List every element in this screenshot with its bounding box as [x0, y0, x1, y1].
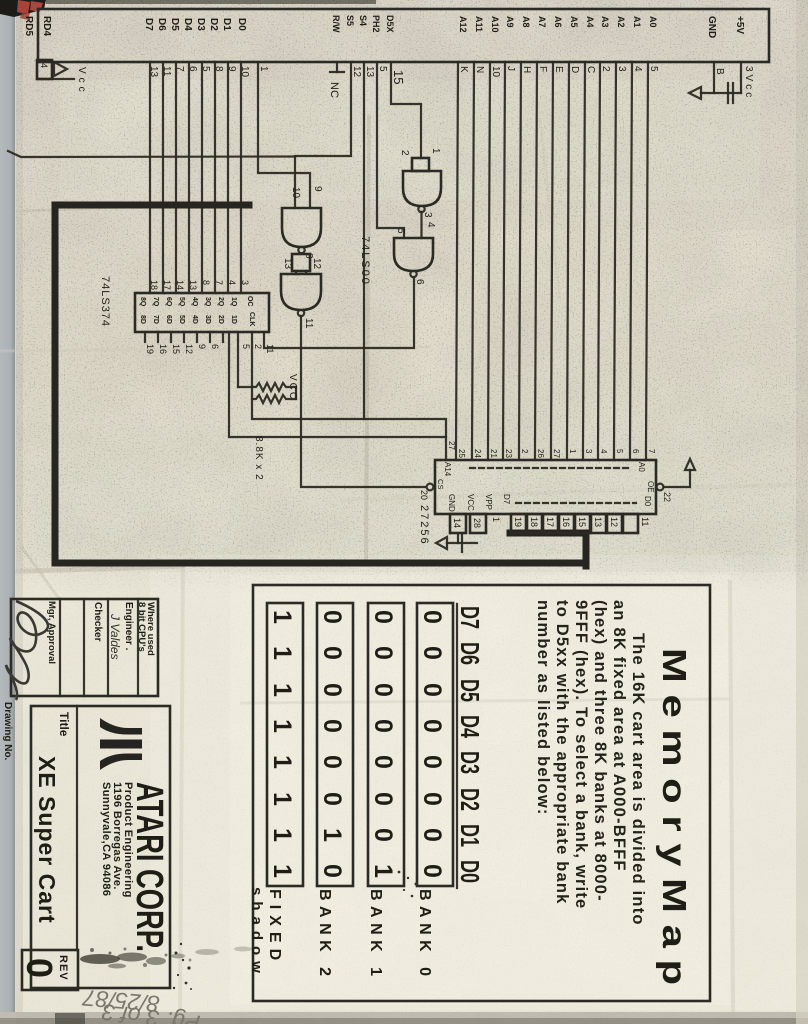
svg-text:A6: A6: [553, 16, 563, 28]
svg-text:22: 22: [662, 492, 672, 502]
svg-text:D5: D5: [169, 18, 180, 31]
svg-text:to D5xx with the appropriate b: to D5xx with the appropriate bank: [553, 600, 571, 905]
svg-text:4D: 4D: [191, 315, 198, 324]
svg-text:0: 0: [318, 646, 346, 660]
svg-text:0: 0: [418, 828, 446, 842]
svg-text:5: 5: [377, 66, 388, 72]
svg-text:15: 15: [577, 517, 587, 527]
svg-text:A8: A8: [521, 16, 531, 28]
svg-text:27: 27: [447, 441, 456, 450]
svg-text:D0: D0: [236, 18, 247, 31]
svg-text:23: 23: [504, 449, 513, 458]
svg-text:5: 5: [395, 228, 406, 234]
svg-text:8 bit CPU's: 8 bit CPU's: [136, 602, 147, 652]
svg-text:24: 24: [473, 449, 482, 458]
svg-text:D5X: D5X: [385, 15, 395, 33]
svg-text:D4: D4: [455, 715, 485, 738]
svg-text:1: 1: [268, 610, 296, 624]
svg-text:GND: GND: [706, 16, 717, 38]
svg-text:26: 26: [536, 449, 545, 458]
svg-text:8: 8: [201, 280, 211, 285]
svg-text:1: 1: [258, 66, 269, 72]
svg-text:4: 4: [632, 66, 643, 72]
svg-text:1: 1: [268, 719, 296, 733]
svg-text:9FFF (hex). To select a bank,: 9FFF (hex). To select a bank, write: [572, 600, 590, 909]
svg-text:Vcc: Vcc: [76, 67, 87, 96]
svg-text:7: 7: [174, 66, 185, 72]
svg-text:VCC: VCC: [287, 374, 298, 401]
svg-text:6D: 6D: [165, 315, 172, 324]
svg-text:NC: NC: [328, 82, 340, 98]
svg-text:2D: 2D: [217, 315, 224, 324]
svg-text:0: 0: [369, 610, 397, 624]
svg-text:15: 15: [171, 344, 181, 354]
svg-text:Drawing No.: Drawing No.: [2, 702, 13, 761]
svg-text:4: 4: [227, 280, 237, 285]
svg-text:2: 2: [600, 66, 611, 72]
svg-text:27256: 27256: [418, 505, 430, 546]
svg-text:VCC: VCC: [466, 494, 475, 511]
svg-text:3D: 3D: [204, 315, 211, 324]
svg-text:D0: D0: [455, 860, 485, 883]
svg-text:1: 1: [268, 683, 296, 697]
svg-text:0: 0: [318, 719, 346, 733]
svg-text:14: 14: [175, 280, 185, 290]
svg-text:number as listed below:: number as listed below:: [534, 600, 552, 816]
svg-text:7D: 7D: [152, 315, 159, 324]
svg-text:1: 1: [491, 517, 501, 522]
svg-text:5: 5: [648, 66, 659, 72]
svg-text:6: 6: [187, 66, 198, 72]
svg-text:6Q: 6Q: [165, 297, 172, 307]
svg-text:E: E: [553, 66, 564, 73]
svg-text:8D: 8D: [139, 315, 146, 324]
svg-text:0: 0: [318, 792, 346, 806]
svg-text:XE Super Cart: XE Super Cart: [34, 756, 60, 924]
svg-text:1: 1: [268, 755, 296, 769]
svg-text:13: 13: [188, 280, 198, 290]
svg-text:H: H: [521, 66, 532, 73]
svg-text:2: 2: [253, 344, 263, 349]
svg-text:1: 1: [318, 828, 346, 842]
svg-text:14: 14: [452, 518, 462, 528]
svg-text:7: 7: [214, 280, 224, 285]
svg-text:9: 9: [312, 186, 323, 192]
svg-text:3Q: 3Q: [204, 297, 211, 307]
svg-text:3: 3: [422, 212, 433, 218]
svg-text:6: 6: [414, 279, 425, 285]
svg-text:17: 17: [162, 280, 172, 290]
svg-text:D: D: [569, 66, 580, 73]
svg-text:12: 12: [184, 344, 194, 354]
svg-text:A7: A7: [537, 16, 547, 28]
svg-text:RD5: RD5: [23, 16, 34, 36]
svg-text:3: 3: [616, 66, 627, 72]
svg-text:A1: A1: [632, 16, 642, 28]
svg-text:19: 19: [513, 517, 523, 527]
svg-text:0: 0: [369, 719, 397, 733]
svg-text:D6: D6: [455, 642, 485, 665]
svg-text:D1: D1: [455, 824, 485, 847]
svg-text:0: 0: [318, 755, 346, 769]
svg-text:6: 6: [210, 344, 220, 349]
svg-text:2: 2: [399, 150, 410, 156]
svg-text:10: 10: [290, 187, 301, 199]
svg-text:A0: A0: [637, 462, 646, 472]
svg-text:12: 12: [609, 517, 619, 527]
svg-text:R/W: R/W: [331, 15, 341, 33]
svg-text:PH2: PH2: [371, 15, 381, 33]
svg-text:0: 0: [369, 646, 397, 660]
svg-text:Mgr, Approval: Mgr, Approval: [46, 601, 57, 664]
svg-text:A9: A9: [505, 16, 515, 28]
svg-text:+5V: +5V: [734, 16, 745, 34]
svg-text:0: 0: [19, 958, 60, 978]
svg-text:5: 5: [615, 449, 624, 454]
svg-text:A3: A3: [600, 16, 610, 28]
svg-text:8.8K x 2: 8.8K x 2: [253, 436, 264, 481]
svg-text:12: 12: [351, 66, 362, 78]
svg-text:N: N: [474, 66, 485, 73]
svg-text:D6: D6: [156, 18, 167, 31]
svg-text:4: 4: [39, 63, 49, 68]
svg-text:GND: GND: [447, 494, 456, 512]
svg-text:6: 6: [631, 449, 640, 454]
svg-text:0: 0: [418, 792, 446, 806]
svg-text:8: 8: [213, 66, 224, 72]
svg-text:CLK: CLK: [248, 312, 255, 326]
svg-text:10: 10: [490, 66, 501, 78]
svg-text:2: 2: [520, 449, 529, 454]
svg-text:5: 5: [200, 66, 211, 72]
svg-text:17: 17: [545, 517, 555, 527]
svg-text:0: 0: [418, 683, 446, 697]
svg-text:A4: A4: [585, 16, 595, 28]
svg-text:28: 28: [472, 518, 482, 528]
svg-text:13: 13: [364, 66, 375, 78]
svg-text:5: 5: [241, 344, 251, 349]
svg-text:4: 4: [599, 449, 608, 454]
svg-text:M e m o r y M a p: M e m o r y M a p: [656, 648, 693, 985]
svg-text:B: B: [714, 68, 725, 75]
svg-text:A14: A14: [443, 462, 452, 477]
svg-text:13: 13: [282, 258, 293, 270]
svg-text:J: J: [505, 66, 516, 71]
svg-text:11: 11: [161, 66, 172, 77]
svg-text:D7: D7: [455, 606, 485, 629]
svg-text:27: 27: [552, 449, 561, 458]
svg-text:D2: D2: [208, 18, 219, 31]
svg-text:9: 9: [226, 66, 237, 72]
svg-text:0: 0: [418, 719, 446, 733]
svg-text:0: 0: [418, 610, 446, 624]
svg-text:21: 21: [489, 449, 498, 458]
svg-text:D2: D2: [455, 788, 485, 811]
svg-text:25: 25: [457, 449, 466, 458]
svg-text:13: 13: [593, 517, 603, 527]
svg-text:BANK 2: BANK 2: [316, 889, 333, 982]
svg-text:D3: D3: [455, 751, 485, 774]
svg-text:1: 1: [268, 792, 296, 806]
svg-text:D7: D7: [502, 494, 511, 505]
svg-text:11: 11: [303, 318, 314, 329]
svg-text:7Q: 7Q: [152, 297, 159, 307]
svg-text:0: 0: [318, 610, 346, 624]
svg-text:Sunnyvale,CA 94086: Sunnyvale,CA 94086: [100, 782, 112, 896]
svg-text:16: 16: [561, 517, 571, 527]
svg-text:4Q: 4Q: [191, 297, 198, 307]
svg-text:0: 0: [369, 792, 397, 806]
svg-text:9: 9: [197, 344, 207, 349]
svg-text:74LS374: 74LS374: [99, 276, 111, 327]
svg-text:1: 1: [568, 449, 577, 454]
svg-text:0: 0: [318, 683, 346, 697]
svg-text:3: 3: [584, 449, 593, 454]
svg-text:0: 0: [418, 864, 446, 878]
svg-text:CS: CS: [436, 479, 445, 489]
svg-text:1: 1: [268, 864, 296, 878]
svg-text:13: 13: [148, 66, 159, 78]
svg-text:1: 1: [268, 646, 296, 660]
svg-text:Checker: Checker: [92, 602, 103, 642]
svg-text:D0: D0: [643, 496, 652, 507]
svg-text:F: F: [537, 66, 548, 72]
svg-text:1Q: 1Q: [230, 297, 237, 307]
svg-text:3Vcc: 3Vcc: [743, 66, 754, 100]
svg-text:19: 19: [145, 344, 155, 354]
svg-text:OC: OC: [246, 296, 253, 307]
svg-text:D5: D5: [455, 679, 485, 702]
svg-text:0: 0: [369, 828, 397, 842]
svg-text:0: 0: [418, 755, 446, 769]
svg-text:The 16K cart area is divided i: The 16K cart area is divided into: [629, 633, 647, 926]
svg-text:A0: A0: [648, 16, 658, 28]
svg-text:FIXED: FIXED: [266, 889, 283, 966]
svg-text:18: 18: [149, 280, 159, 290]
svg-text:11: 11: [640, 517, 650, 526]
svg-text:74LS00: 74LS00: [359, 236, 371, 286]
svg-text:8Q: 8Q: [139, 297, 146, 307]
svg-text:K: K: [458, 66, 469, 73]
svg-text:1D: 1D: [230, 315, 237, 324]
svg-text:A5: A5: [569, 16, 579, 28]
svg-text:1: 1: [430, 148, 441, 154]
svg-text:C: C: [585, 66, 596, 73]
svg-text:4: 4: [425, 222, 436, 228]
svg-text:Engineer .: Engineer .: [123, 602, 134, 651]
svg-text:20: 20: [419, 490, 429, 500]
svg-text:BANK 0: BANK 0: [416, 889, 433, 982]
svg-text:3: 3: [240, 280, 250, 285]
svg-text:10: 10: [239, 66, 250, 78]
svg-text:D7: D7: [143, 18, 154, 31]
svg-text:12: 12: [311, 258, 322, 270]
svg-text:Title: Title: [57, 712, 71, 737]
svg-text:J Valdes: J Valdes: [108, 613, 122, 660]
svg-text:D3: D3: [195, 18, 206, 31]
svg-text:0: 0: [369, 683, 397, 697]
svg-text:2Q: 2Q: [217, 297, 224, 307]
svg-text:0: 0: [369, 755, 397, 769]
svg-text:18: 18: [529, 517, 539, 527]
svg-text:D4: D4: [182, 18, 193, 31]
svg-text:shadow: shadow: [248, 887, 265, 979]
svg-text:D1: D1: [221, 18, 232, 31]
svg-text:5Q: 5Q: [178, 297, 185, 307]
svg-text:A2: A2: [616, 16, 626, 28]
svg-text:0: 0: [418, 646, 446, 660]
svg-text:7: 7: [647, 449, 656, 454]
svg-text:0: 0: [318, 864, 346, 878]
svg-text:5D: 5D: [178, 315, 185, 324]
svg-text:RD4: RD4: [41, 16, 52, 36]
svg-text:A12: A12: [458, 16, 468, 33]
svg-text:1: 1: [369, 864, 397, 878]
svg-text:an 8K fixed area at A000-BFFF: an 8K fixed area at A000-BFFF: [610, 600, 628, 872]
svg-text:(hex) and three 8K banks at 80: (hex) and three 8K banks at 8000-: [591, 600, 609, 902]
svg-text:A10: A10: [490, 16, 500, 33]
svg-text:16: 16: [158, 344, 168, 354]
svg-text:VPP: VPP: [484, 494, 493, 510]
svg-text:OE: OE: [646, 481, 655, 493]
svg-text:BANK 1: BANK 1: [367, 889, 384, 982]
svg-text:A11: A11: [474, 16, 484, 32]
svg-text:15: 15: [391, 70, 406, 84]
svg-text:S4: S4: [358, 15, 368, 26]
svg-text:S5: S5: [345, 15, 355, 26]
svg-text:1: 1: [268, 828, 296, 842]
